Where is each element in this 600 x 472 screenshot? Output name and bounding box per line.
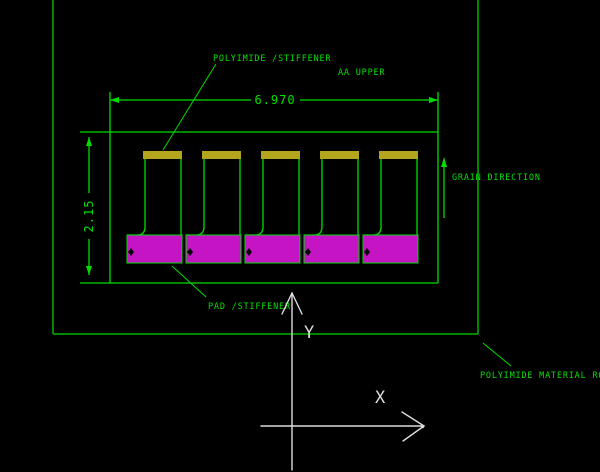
width-dimension: 6.970 [110,93,438,107]
unit-neck-left [186,159,204,235]
height-dimension: 2.15 [82,137,96,275]
note-pad-stiffener: PAD /STIFFENER [208,302,291,312]
leader-lines [163,64,511,366]
leader-pad-stiffener [172,266,206,297]
width-dimension-value: 6.970 [254,93,295,107]
cad-canvas[interactable]: 6.970 2.15 POLYIMIDE /STIFFENER AA UPPER… [0,0,600,472]
dim-arrow-right [429,97,438,103]
axis-indicator: Y X [261,293,424,470]
grain-direction-arrow [441,157,447,218]
pad-rect [245,235,300,263]
dim-arrow-top [86,137,92,146]
stiffener-unit [127,151,182,263]
leader-top-stiffener [163,64,216,150]
leader-material-roll [483,343,511,366]
note-polyimide-material-roll: POLYIMIDE MATERIAL ROLL [480,371,600,381]
pad-rect [186,235,241,263]
material-roll-border [53,0,478,334]
x-arrow-tip-dot [421,425,424,428]
y-axis-label: Y [304,323,314,343]
x-axis-label: X [375,388,386,408]
dim-arrow-bottom [86,266,92,275]
y-arrow-wing-right [292,293,302,314]
unit-neck-left [245,159,263,235]
stiffener-bar [261,151,300,159]
stiffener-unit [304,151,359,263]
stiffener-unit [245,151,300,263]
note-grain-direction: GRAIN DIRECTION [452,173,541,183]
x-arrow-wing-top [402,412,424,426]
grain-arrow-head [441,157,447,167]
stiffener-bar [320,151,359,159]
stiffener-unit [186,151,241,263]
pad-rect [127,235,182,263]
stiffener-bar [143,151,182,159]
pad-rect [363,235,418,263]
note-upper: AA UPPER [338,68,385,78]
stiffener-unit [363,151,418,263]
height-dimension-value: 2.15 [82,200,96,233]
unit-neck-left [127,159,145,235]
unit-neck-left [363,159,381,235]
stiffener-units [127,151,418,263]
stiffener-bar [202,151,241,159]
dim-arrow-left [110,97,119,103]
stiffener-bar [379,151,418,159]
pad-rect [304,235,359,263]
cad-viewport: 6.970 2.15 POLYIMIDE /STIFFENER AA UPPER… [0,0,600,472]
x-arrow-wing-bottom [403,426,424,441]
note-polyimide-stiffener: POLYIMIDE /STIFFENER [213,54,331,64]
unit-neck-left [304,159,322,235]
